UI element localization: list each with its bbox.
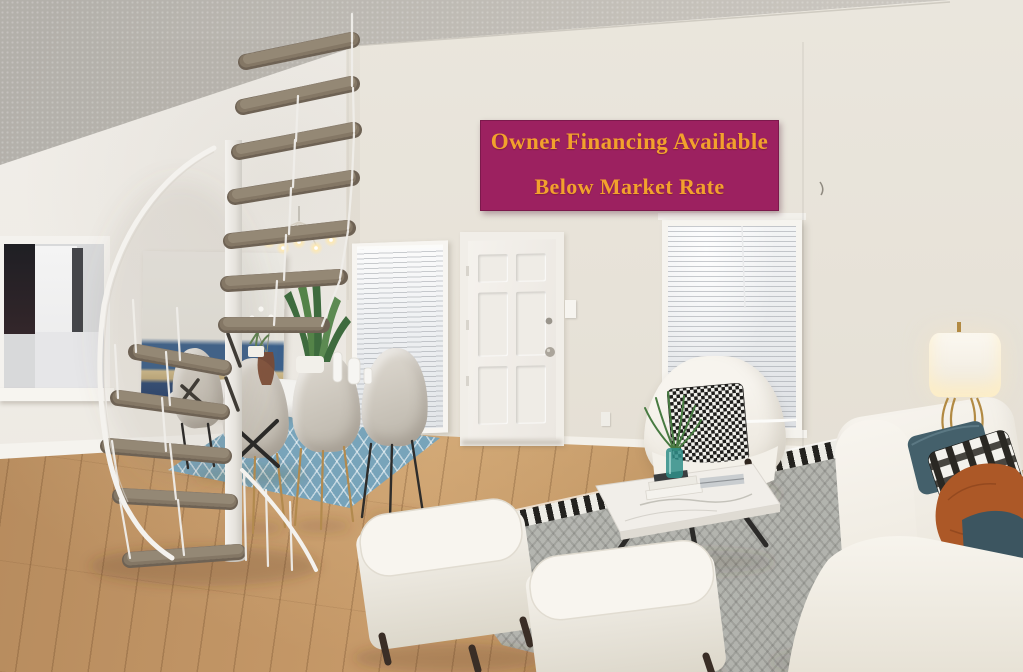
light-switch: [565, 300, 576, 318]
entry-door: [468, 239, 556, 441]
door-panel: [516, 365, 546, 424]
pass-through-opening: [4, 244, 104, 390]
banner-line2: Below Market Rate: [534, 174, 724, 200]
table-lamp-shade: [929, 333, 1001, 397]
pass-through-sill: [0, 388, 114, 401]
door-panel: [478, 254, 508, 283]
door-panel: [516, 291, 546, 356]
tv-screen: [4, 244, 35, 334]
kitchen-counter: [35, 332, 101, 390]
door-panel: [478, 366, 508, 425]
door-panel: [478, 292, 508, 357]
wall-outlet: [601, 412, 610, 426]
door-panel: [516, 253, 546, 282]
sofa-arm: [833, 418, 923, 633]
window-head-rail: [658, 213, 806, 220]
door-floor-shadow: [462, 440, 562, 445]
promo-banner: Owner Financing Available Below Market R…: [480, 120, 779, 211]
kitchen-cabinet-edge: [72, 248, 83, 334]
listing-photo: Owner Financing Available Below Market R…: [0, 0, 1023, 672]
banner-line1: Owner Financing Available: [491, 129, 769, 155]
